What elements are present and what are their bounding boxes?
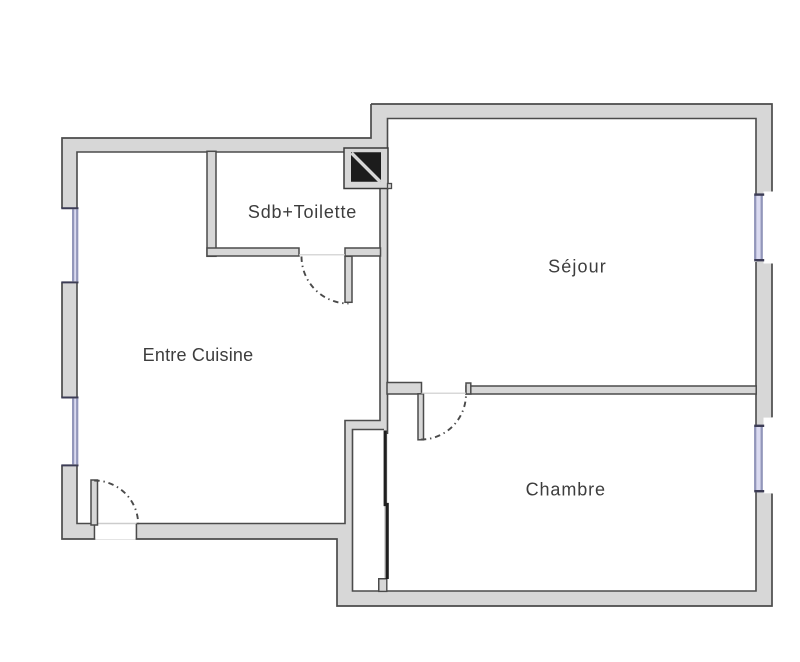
svg-text:Sdb+Toilette: Sdb+Toilette <box>248 202 357 222</box>
svg-text:Chambre: Chambre <box>526 480 606 500</box>
svg-text:Entre Cuisine: Entre Cuisine <box>143 345 254 365</box>
svg-text:Séjour: Séjour <box>548 257 607 277</box>
